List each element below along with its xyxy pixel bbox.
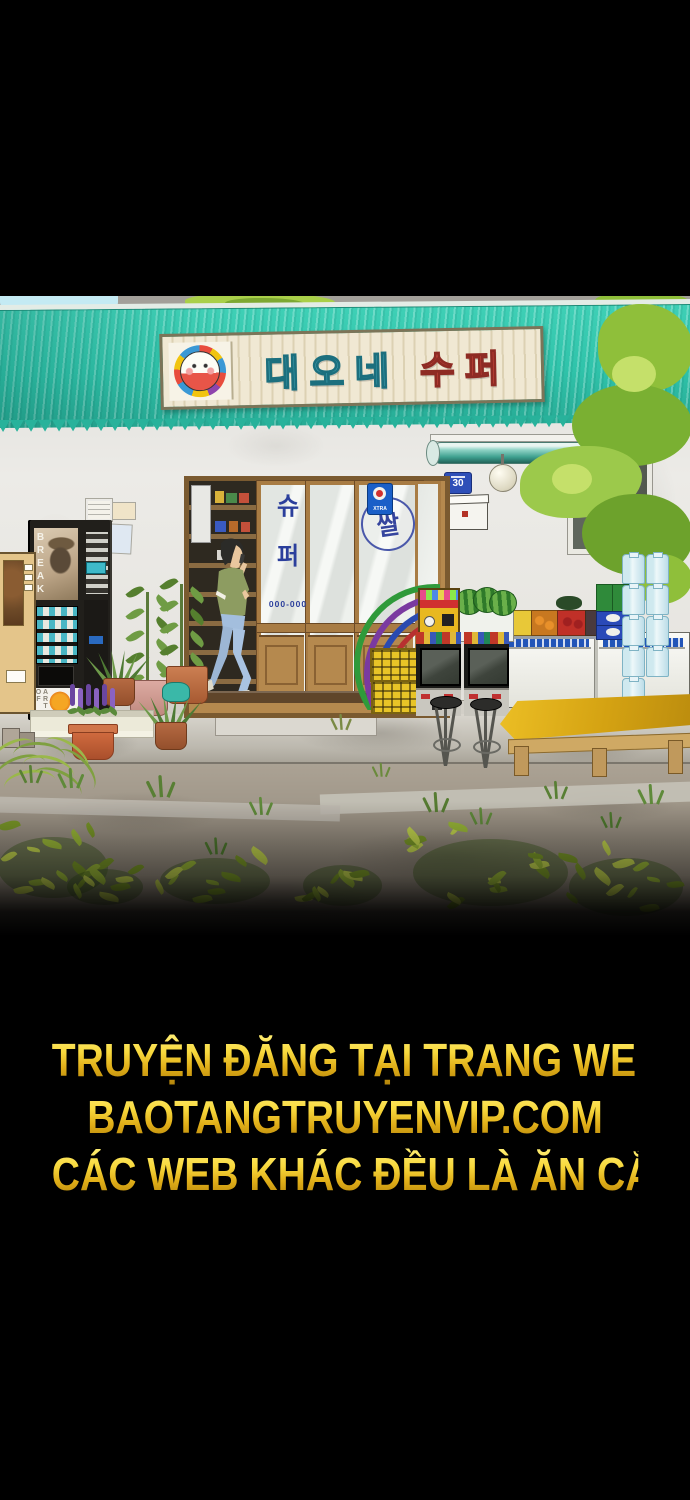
arcade-screen xyxy=(468,648,509,686)
store-name-text: 대오네 수퍼 xyxy=(232,337,541,398)
decor xyxy=(146,592,149,688)
stool-ring xyxy=(433,738,461,752)
decor xyxy=(155,722,187,750)
capsule-knob xyxy=(424,616,435,627)
egg-mascot-icon xyxy=(173,345,226,398)
sticker-dot xyxy=(376,490,383,497)
decor xyxy=(187,630,206,647)
stool xyxy=(468,698,502,776)
decor xyxy=(125,583,144,600)
decor xyxy=(159,575,178,592)
watering-can xyxy=(162,682,190,702)
water-bottle xyxy=(646,585,669,615)
awning-end-cap xyxy=(426,440,440,466)
cup-display-window xyxy=(36,606,78,664)
decor xyxy=(187,608,206,625)
wall-poster xyxy=(112,502,136,520)
tree-foliage-highlight xyxy=(612,356,656,392)
water-bottle xyxy=(646,616,669,646)
decor xyxy=(70,684,75,706)
table-leg xyxy=(668,740,683,774)
decor xyxy=(239,493,249,503)
watermark-line-1: TRUYỆN ĐĂNG TẠI TRANG WEB xyxy=(52,1032,639,1089)
wall-poster xyxy=(109,523,133,554)
corner-grass-plant xyxy=(0,732,96,856)
decor xyxy=(86,684,91,706)
mascot-panel xyxy=(168,341,233,400)
decor xyxy=(226,493,237,503)
water-bottle xyxy=(622,554,645,584)
decor xyxy=(215,521,226,532)
webtoon-page: 30 대오네 수퍼 xyxy=(0,0,690,1500)
snack-vending-machine xyxy=(0,552,36,714)
water-bottle xyxy=(622,647,645,677)
arcade-marquee xyxy=(464,632,509,644)
stool-ring xyxy=(473,740,501,754)
vending-button xyxy=(24,574,33,581)
decor xyxy=(159,597,178,614)
door-rail xyxy=(257,623,306,633)
stool xyxy=(428,696,462,774)
mascot-face xyxy=(180,351,221,392)
door-kick-panel xyxy=(308,635,353,693)
leafy-greens xyxy=(556,596,582,610)
decor xyxy=(241,522,250,532)
freezer-lid xyxy=(505,647,591,649)
water-bottle xyxy=(646,554,669,584)
green-box xyxy=(596,584,613,612)
water-bottle xyxy=(646,647,669,677)
vending-poster: BREAK xyxy=(34,528,78,600)
vending-button xyxy=(24,584,33,591)
decor xyxy=(125,627,144,644)
decor xyxy=(159,641,178,658)
globe-lamp xyxy=(489,464,517,492)
decor xyxy=(215,491,224,503)
door-glass-text: 슈 퍼 xyxy=(273,495,303,595)
water-bottle xyxy=(622,616,645,646)
decor xyxy=(107,706,119,716)
watermark-line-3: CÁC WEB KHÁC ĐỀU LÀ ĂN CẮP xyxy=(52,1146,639,1203)
door-phone-number: 000-000 xyxy=(263,599,313,609)
table-leg xyxy=(514,746,529,776)
wall-poster xyxy=(85,498,113,522)
arcade-marquee xyxy=(416,632,461,644)
orange-crate xyxy=(531,610,558,636)
coffee-photo-panel xyxy=(3,560,24,626)
vending-button xyxy=(24,564,33,571)
arcade-screen xyxy=(420,648,461,686)
decor xyxy=(102,684,107,706)
vending-screen xyxy=(86,562,106,574)
decor xyxy=(159,619,178,636)
decor xyxy=(191,485,211,543)
watermark-text: TRUYỆN ĐĂNG TẠI TRANG WEB BAOTANGTRUYENV… xyxy=(0,1032,690,1203)
table-leg xyxy=(592,748,607,777)
store-name-part2: 수퍼 xyxy=(419,348,510,392)
stool-seat xyxy=(470,698,502,711)
decor xyxy=(229,521,238,532)
dispense-slot xyxy=(38,666,74,686)
water-bottle-stack xyxy=(622,554,690,642)
decor xyxy=(125,605,144,622)
vending-slot xyxy=(6,670,26,683)
capsule-red-band xyxy=(420,600,458,608)
watermelon xyxy=(489,590,517,616)
tomato-crate xyxy=(557,610,586,636)
water-bottle xyxy=(622,585,645,615)
watermark-line-2: BAOTANGTRUYENVIP.COM xyxy=(52,1089,639,1146)
capsule-marquee xyxy=(420,590,458,600)
brand-sticker: XTRA xyxy=(367,483,393,515)
stool-seat xyxy=(430,696,462,709)
vending-poster-text: BREAK xyxy=(35,532,46,597)
tree-foliage-highlight xyxy=(552,464,592,494)
store-sign: 대오네 수퍼 xyxy=(159,326,545,410)
store-name-part1: 대오네 xyxy=(264,351,400,396)
capsule-window xyxy=(442,614,454,626)
comic-panel: 30 대오네 수퍼 xyxy=(0,296,690,936)
door-glass-char-2: 퍼 xyxy=(273,545,303,569)
sticker-label: XTRA xyxy=(368,506,392,512)
door-kick-panel xyxy=(259,635,304,693)
decor xyxy=(187,586,206,603)
freezer-divider xyxy=(594,633,598,707)
door-glass-char-1: 슈 xyxy=(273,495,303,519)
